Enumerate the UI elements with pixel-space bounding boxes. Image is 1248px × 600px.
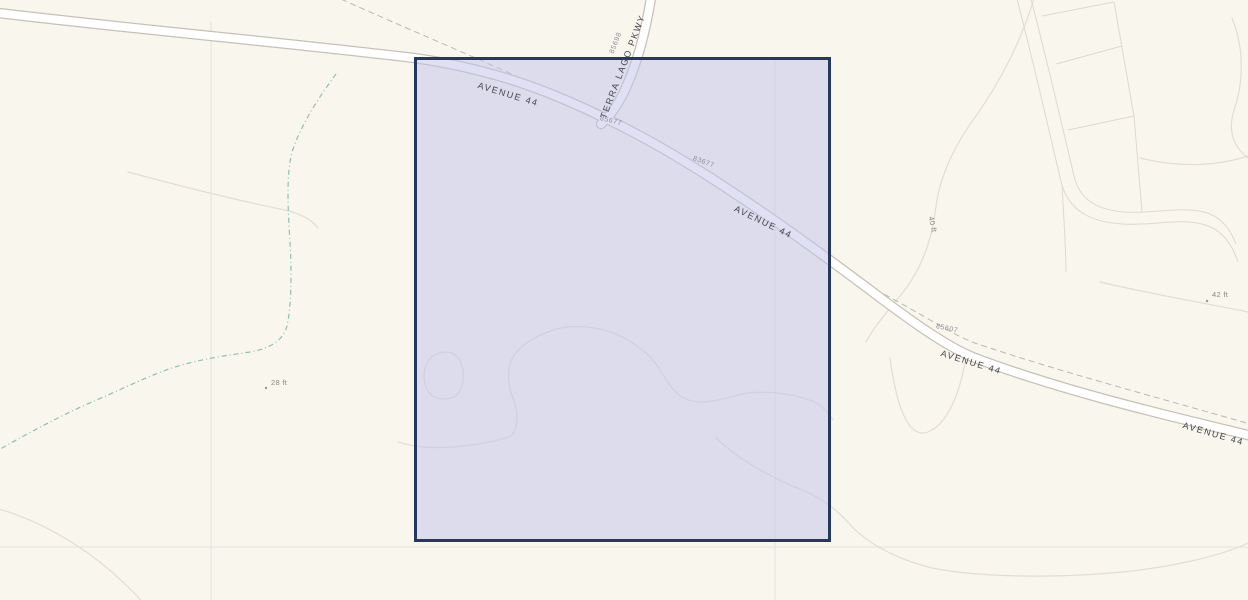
stream-dashed-line — [0, 74, 336, 452]
subdivision-lines — [1016, 0, 1238, 272]
selected-parcel[interactable] — [414, 57, 831, 542]
map-canvas[interactable]: AVENUE 44 TERRA LAGO PKWY 85698 85677 83… — [0, 0, 1248, 600]
